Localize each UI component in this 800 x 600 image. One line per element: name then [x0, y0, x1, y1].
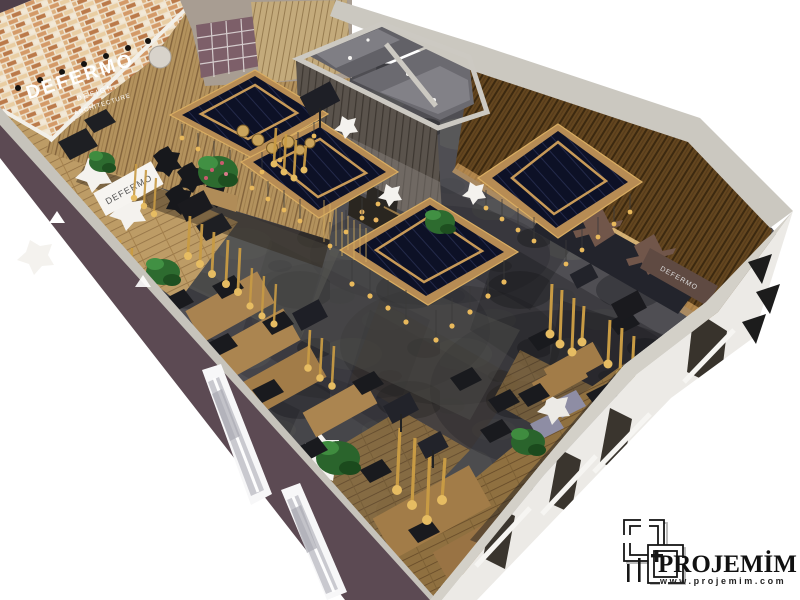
svg-text:www.projemim.com: www.projemim.com [659, 576, 786, 586]
svg-text:PROJEMİM: PROJEMİM [658, 550, 797, 578]
